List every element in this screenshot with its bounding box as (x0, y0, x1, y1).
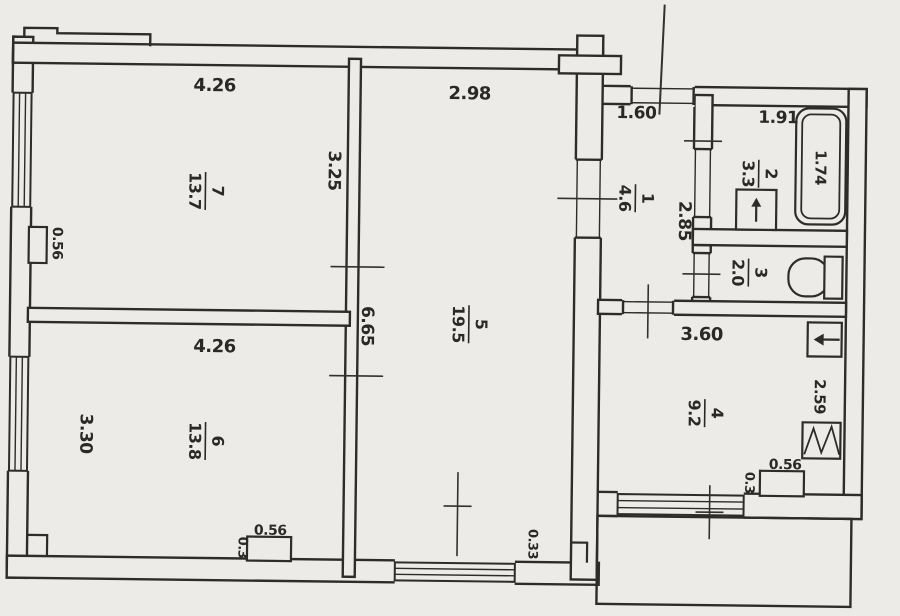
dim-room5-offset: 0.33 (524, 529, 539, 560)
room-1-number: 1 (638, 193, 657, 204)
dim-kitchen-ledge-depth: 0.3 (741, 472, 756, 494)
window-room7 (9, 93, 34, 207)
floor-plan-scan: 4.26 2.98 1.60 1.91 3.60 4.26 0.56 0.56 … (0, 0, 900, 616)
dim-room7-niche: 0.56 (49, 227, 65, 260)
room-label-2: 2 3.3 (738, 160, 780, 189)
window-room6 (6, 357, 31, 471)
room-label-5: 5 19.5 (449, 305, 491, 344)
room-4-area: 9.2 (685, 399, 704, 426)
corner-step-room6 (27, 535, 47, 556)
room-5-number: 5 (472, 319, 491, 330)
dim-kitchen-depth: 2.59 (810, 379, 828, 414)
tick-door-room6 (329, 376, 383, 377)
door-kitchen (622, 284, 675, 339)
dim-kitchen-ledge-width: 0.56 (769, 457, 802, 473)
room-label-4: 4 9.2 (685, 399, 727, 428)
room-3-number: 3 (751, 267, 770, 278)
balcony (596, 516, 851, 607)
room-label-3: 3 2.0 (728, 258, 770, 287)
floor-plan-drawing: 4.26 2.98 1.60 1.91 3.60 4.26 0.56 0.56 … (0, 0, 900, 616)
dim-room7-depth: 3.25 (323, 150, 343, 190)
dim-room6-ledge-depth: 0.3 (234, 537, 249, 559)
room-1-area: 4.6 (615, 185, 634, 212)
dim-hall-depth: 2.85 (674, 201, 694, 241)
window-kitchen (617, 484, 744, 540)
tick-door-room7 (330, 267, 384, 268)
room-7-area: 13.7 (185, 172, 204, 210)
room-5-area: 19.5 (449, 305, 468, 343)
room-6-number: 6 (208, 435, 227, 446)
wall-ledge-kitchen (760, 471, 804, 497)
wall-pilaster-room7 (29, 227, 47, 263)
vent-shaft-icon (807, 322, 841, 356)
room-label-1: 1 4.6 (615, 184, 657, 213)
room-7-number: 7 (208, 185, 227, 196)
window-room5 (395, 471, 516, 585)
room-2-number: 2 (762, 168, 781, 179)
room-3-area: 2.0 (728, 259, 747, 286)
dim-room5-width: 2.98 (448, 83, 491, 105)
toilet-icon (788, 256, 843, 299)
dim-room6-ledge-width: 0.56 (254, 523, 287, 539)
washbasin-icon (736, 189, 776, 229)
room-4-number: 4 (708, 408, 727, 419)
wall-ledge-room6 (247, 537, 291, 562)
dim-bath-width: 1.91 (758, 108, 798, 128)
door-toilet (682, 253, 721, 297)
dim-room7-width: 4.26 (193, 75, 236, 97)
room-label-6: 6 13.8 (185, 422, 227, 461)
dim-hall-width: 1.60 (616, 103, 657, 123)
room-6-area: 13.8 (185, 422, 204, 460)
dim-bathtub-length: 1.74 (811, 150, 829, 185)
door-room5-hall (557, 159, 618, 238)
kitchen-sink-icon (802, 422, 840, 458)
wall-junction-cross (559, 55, 621, 74)
dim-kitchen-width: 3.60 (680, 324, 723, 346)
room-label-7: 7 13.7 (185, 172, 227, 211)
dim-room5-depth: 6.65 (357, 306, 377, 346)
dim-room6-depth: 3.30 (75, 413, 95, 454)
room-2-area: 3.3 (739, 160, 758, 187)
dim-room6-width: 4.26 (193, 336, 236, 358)
